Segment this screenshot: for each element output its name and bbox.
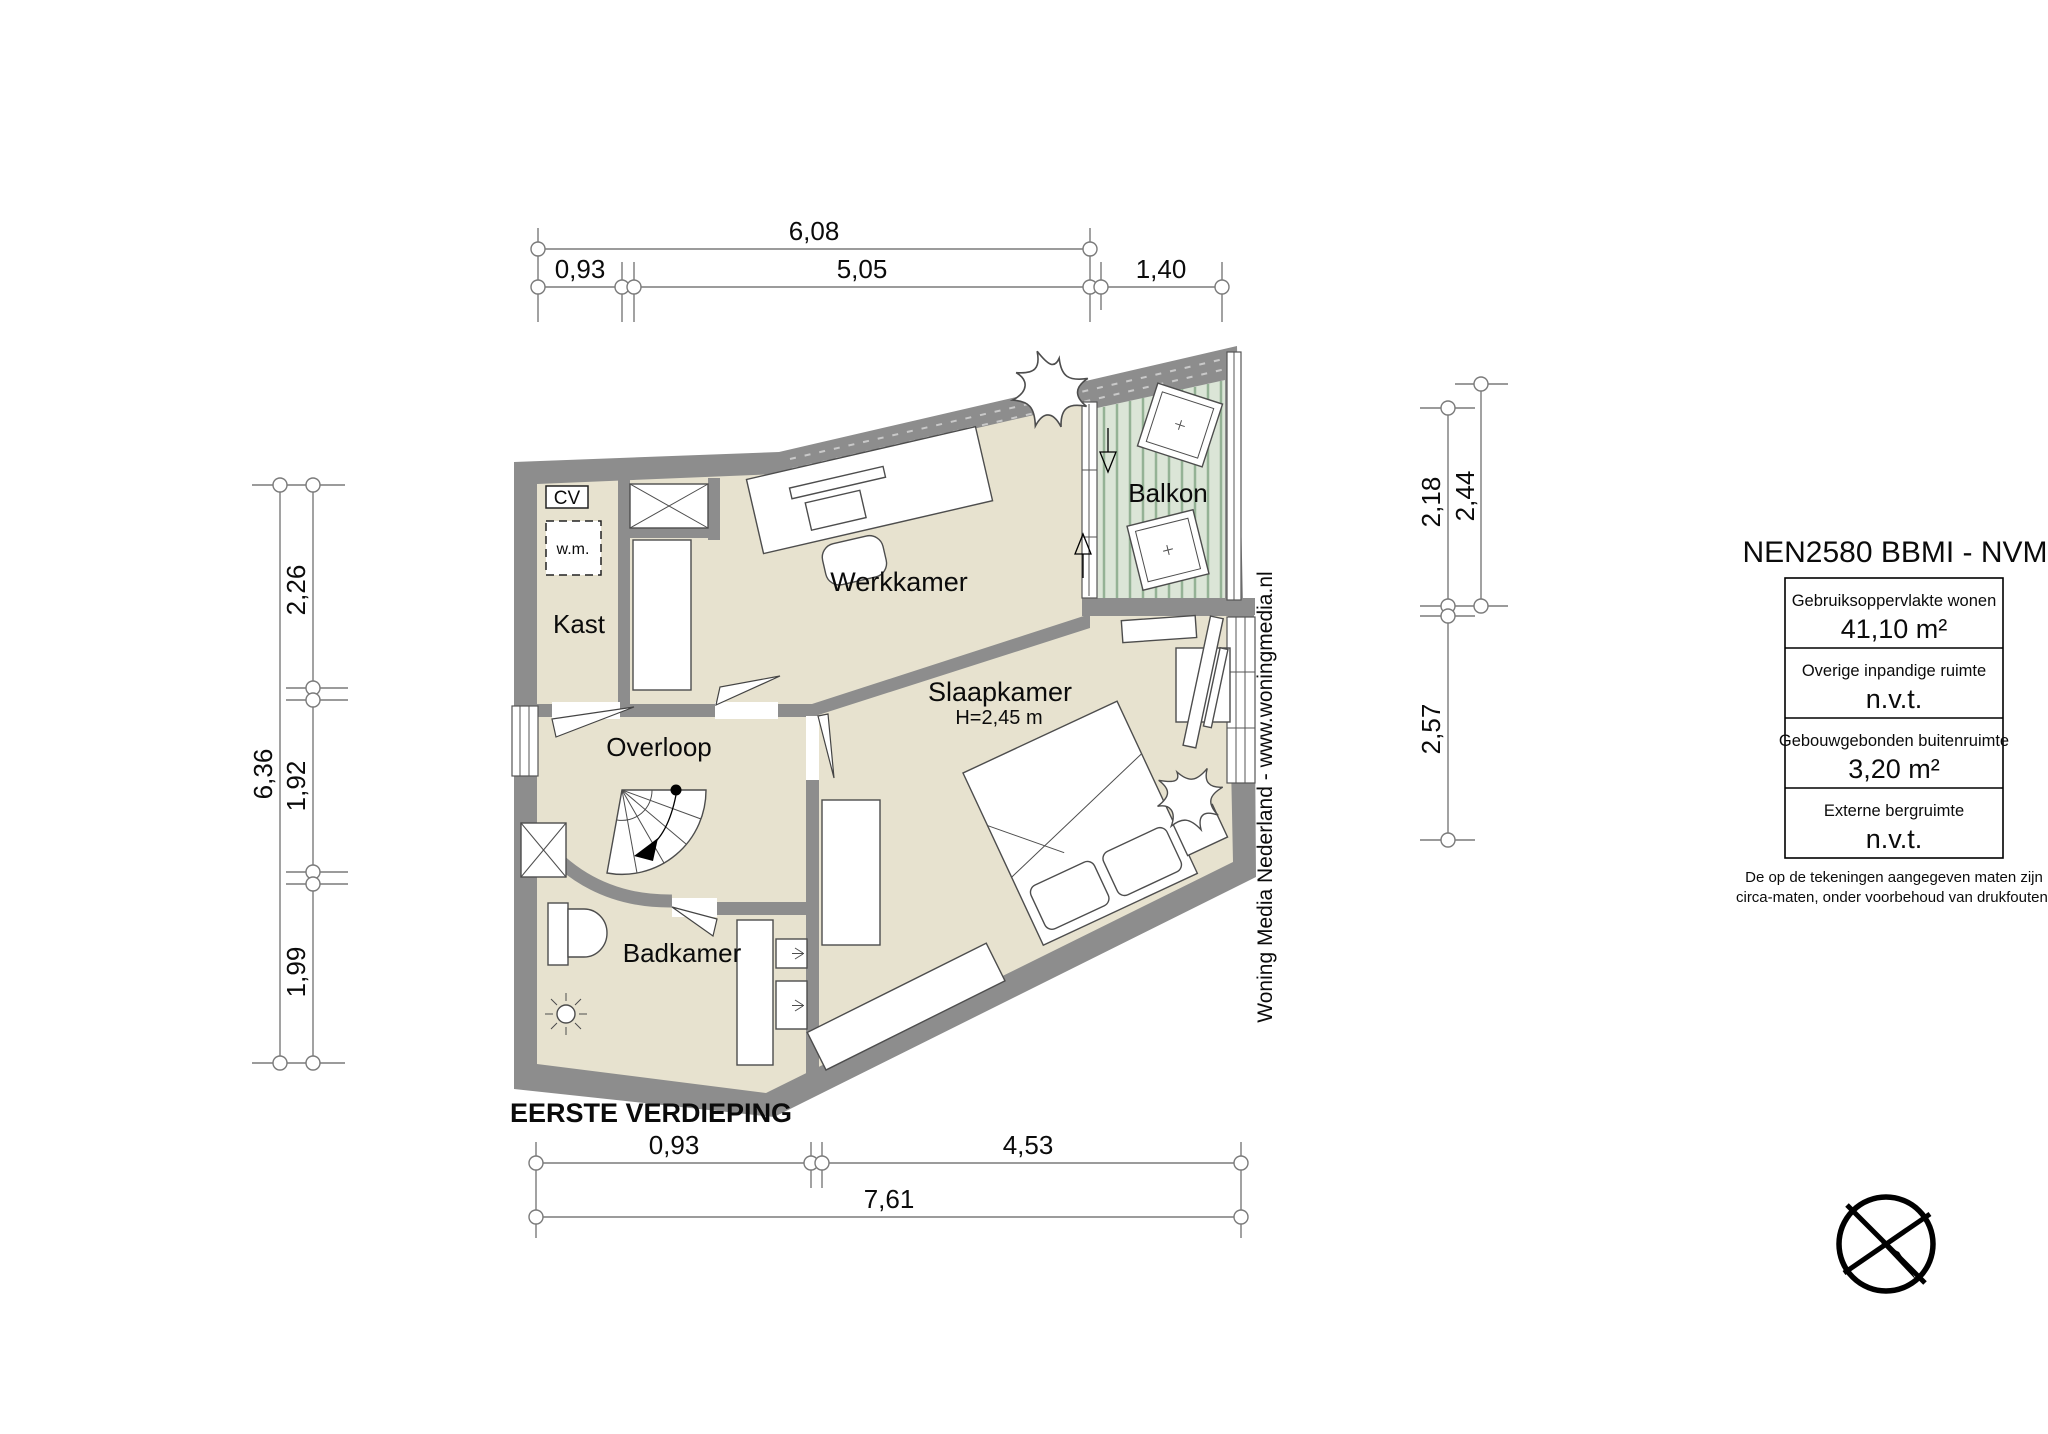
compass-north-needle xyxy=(1881,1243,1917,1281)
legend-row-4-label: Externe bergruimte xyxy=(1824,802,1964,820)
dim-left-total: 6,36 xyxy=(248,749,278,800)
legend-row-2-value: n.v.t. xyxy=(1866,684,1923,714)
legend-row-1-label: Gebruiksoppervlakte wonen xyxy=(1792,592,1997,610)
floor-title: EERSTE VERDIEPING xyxy=(510,1098,792,1128)
shelf-under-balcony xyxy=(1121,616,1196,643)
legend-disclaimer-1: De op de tekeningen aangegeven maten zij… xyxy=(1745,869,2043,886)
dimension-left: 6,36 2,26 1,92 1,99 xyxy=(248,478,348,1070)
room-label-badkamer: Badkamer xyxy=(623,938,742,968)
shower xyxy=(737,920,773,1065)
ceiling-light-icon xyxy=(545,993,587,1035)
dim-top-seg1: 0,93 xyxy=(555,254,606,284)
vanity-1 xyxy=(776,939,807,968)
stair-newel-dot xyxy=(671,785,682,796)
dimension-bottom: 0,93 4,53 7,61 xyxy=(529,1130,1248,1238)
room-label-balkon: Balkon xyxy=(1128,478,1208,508)
dim-left-seg3: 1,99 xyxy=(281,947,311,998)
dim-right-upper2: 2,44 xyxy=(1450,471,1480,522)
room-label-slaapkamer: Slaapkamer xyxy=(928,677,1072,707)
legend-row-1-value: 41,10 m² xyxy=(1841,614,1948,644)
legend-row-2-label: Overige inpandige ruimte xyxy=(1802,662,1986,680)
dim-right-lower: 2,57 xyxy=(1416,704,1446,755)
dimension-top: 6,08 0,93 5,05 1,40 xyxy=(531,216,1229,322)
label-wm: w.m. xyxy=(556,541,590,558)
room-label-werkkamer: Werkkamer xyxy=(830,567,968,597)
legend-row-3-label: Gebouwgebonden buitenruimte xyxy=(1779,732,2009,750)
dim-right-upper1: 2,18 xyxy=(1416,477,1446,528)
dim-top-total: 6,08 xyxy=(789,216,840,246)
compass-icon xyxy=(1839,1197,1933,1291)
dim-bottom-seg2: 4,53 xyxy=(1003,1130,1054,1160)
watermark-text: Woning Media Nederland - www.woningmedia… xyxy=(1254,571,1277,1022)
label-cv: CV xyxy=(554,488,581,509)
dim-left-seg1: 2,26 xyxy=(281,565,311,616)
bedroom-wardrobe xyxy=(822,800,880,945)
dimension-right: 2,18 2,44 2,57 xyxy=(1416,377,1508,847)
dim-left-seg2: 1,92 xyxy=(281,761,311,812)
window-left-wall xyxy=(512,706,538,776)
room-label-kast: Kast xyxy=(553,609,606,639)
dim-top-seg2: 5,05 xyxy=(837,254,888,284)
legend-title: NEN2580 BBMI - NVM xyxy=(1742,536,2047,569)
vanity-2 xyxy=(776,981,807,1029)
dim-bottom-seg1: 0,93 xyxy=(649,1130,700,1160)
window-bedroom xyxy=(1227,617,1255,783)
legend-panel: NEN2580 BBMI - NVM Gebruiksoppervlakte w… xyxy=(1736,536,2048,906)
legend-row-4-value: n.v.t. xyxy=(1866,824,1923,854)
duct-shaft xyxy=(521,823,566,877)
closet-cabinet xyxy=(633,540,691,690)
room-label-slaapkamer-height: H=2,45 m xyxy=(955,707,1042,729)
legend-disclaimer-2: circa-maten, onder voorbehoud van drukfo… xyxy=(1736,889,2048,906)
legend-row-3-value: 3,20 m² xyxy=(1848,754,1940,784)
shaft-x-box xyxy=(630,484,708,528)
dim-top-seg3: 1,40 xyxy=(1136,254,1187,284)
floor-plan-canvas: 6,08 0,93 5,05 1,40 6,36 2,26 1,92 1,99 xyxy=(0,0,2048,1434)
dim-bottom-total: 7,61 xyxy=(864,1184,915,1214)
room-label-overloop: Overloop xyxy=(606,732,712,762)
